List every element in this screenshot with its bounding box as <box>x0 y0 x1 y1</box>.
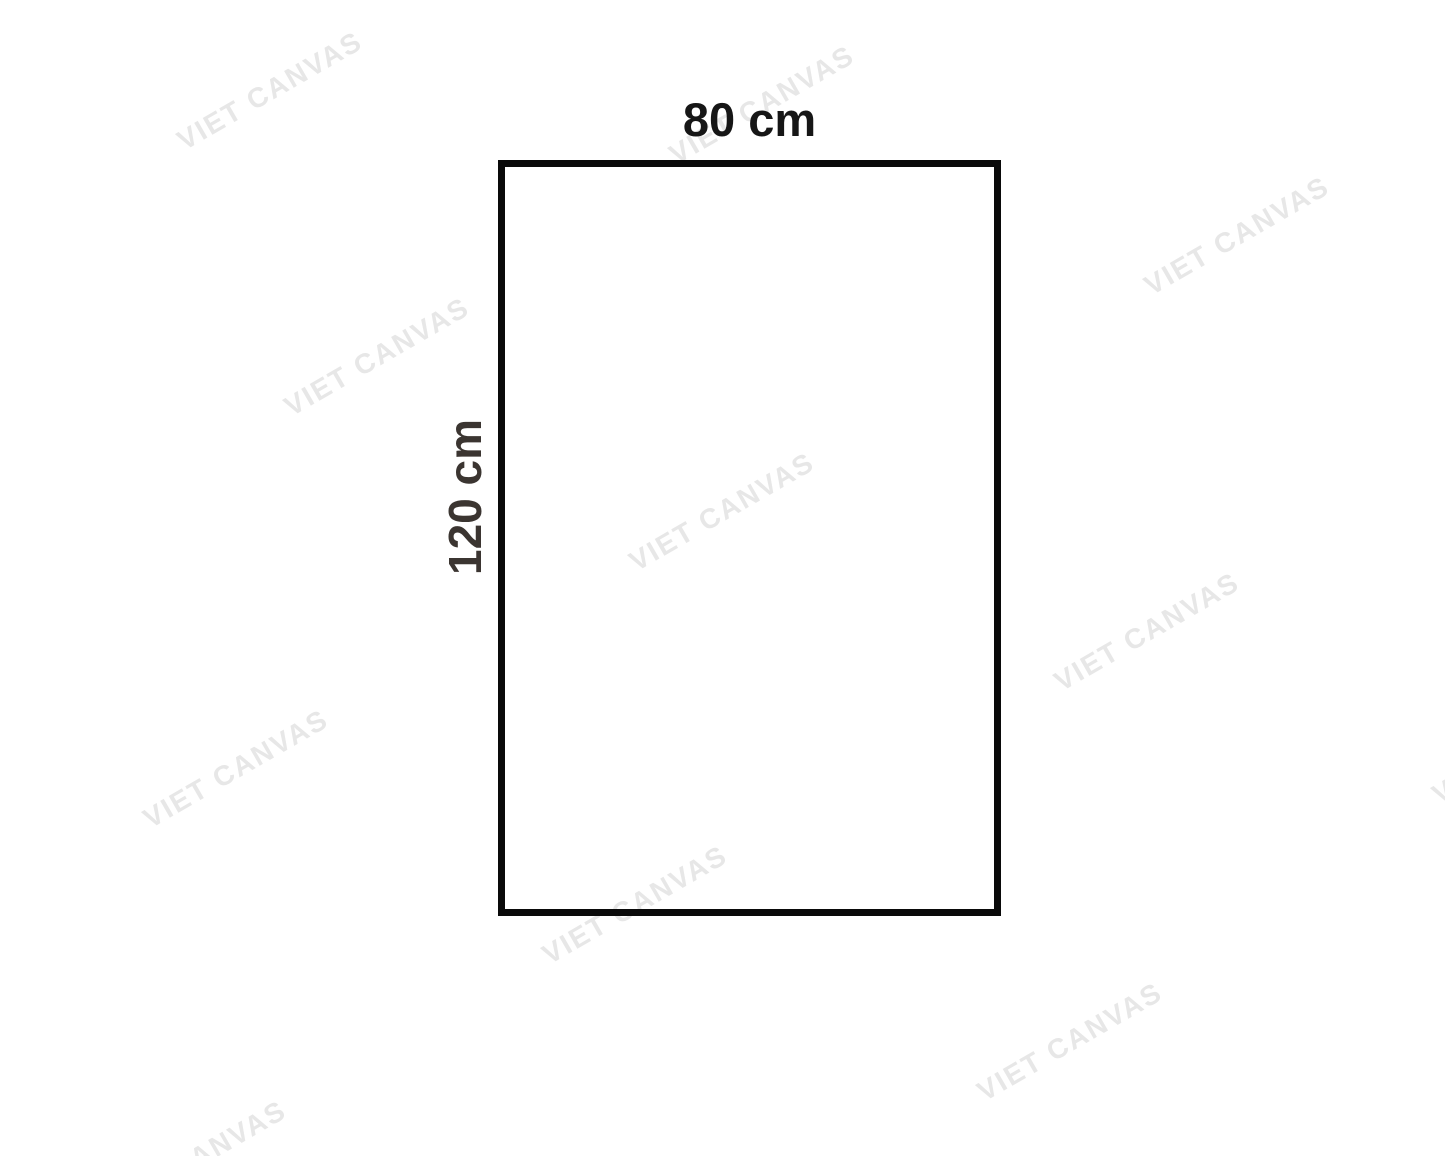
artboard: VIET CANVASVIET CANVASVIET CANVASVIET CA… <box>0 0 1445 1156</box>
watermark-text: VIET CANVAS <box>138 703 334 835</box>
watermark-text: VIET CANVAS <box>1139 170 1335 302</box>
watermark-text: VIET CANVAS <box>1049 566 1245 698</box>
size-rectangle <box>498 160 1001 916</box>
width-dimension-label: 80 cm <box>498 96 1001 143</box>
watermark-text: VIET CANVAS <box>96 1094 292 1156</box>
watermark-text: VIET CANVAS <box>1427 679 1445 811</box>
watermark-text: VIET CANVAS <box>279 291 475 423</box>
watermark-text: VIET CANVAS <box>972 976 1168 1108</box>
watermark-text: VIET CANVAS <box>172 25 368 157</box>
height-dimension-label: 120 cm <box>442 419 488 575</box>
